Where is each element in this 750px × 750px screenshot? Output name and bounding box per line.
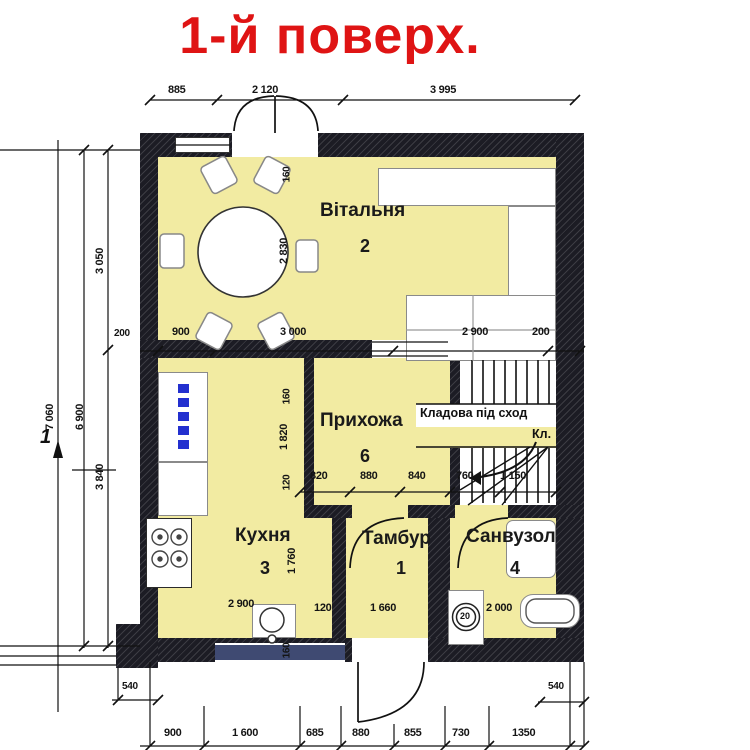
dim-bottom-6: 730 (452, 727, 469, 739)
dim-hall-4: 760 (456, 470, 473, 482)
dim-col-2830: 2 830 (278, 223, 290, 279)
boiler-icon (178, 384, 189, 450)
wall-rooms-top-a (304, 505, 352, 518)
drain-label: 20 (460, 611, 470, 621)
dim-mid-1: 900 (172, 326, 189, 338)
dim-bottom-2: 1 600 (232, 727, 258, 739)
dim-hall-1: 820 (310, 470, 327, 482)
dim-col-160c: 160 (282, 623, 293, 679)
hallway-label: Прихожа (320, 410, 403, 432)
dim-col-160a: 160 (282, 147, 293, 203)
wall-right (556, 133, 584, 662)
vestibule-label: Тамбур (362, 528, 431, 550)
closet-label: Кладова під сход (420, 406, 527, 420)
wall-vestibule-left (332, 518, 346, 638)
dim-bottom-7: 1350 (512, 727, 535, 739)
wall-mid-left (140, 340, 372, 358)
floor-plan: 1-й поверх. (0, 0, 750, 750)
dim-bathroom-width: 2 000 (486, 602, 512, 614)
dim-left-upper: 3 050 (94, 233, 106, 289)
dim-top-3: 3 995 (430, 84, 456, 96)
axis-label: 1 (40, 426, 51, 449)
wall-rooms-top-b (408, 505, 455, 518)
dim-left-lower: 3 840 (94, 449, 106, 505)
living-room-number: 2 (360, 236, 370, 257)
dim-offset-left: 540 (122, 681, 138, 692)
dim-kitchen-width: 2 900 (228, 598, 254, 610)
dim-mid-2: 3 000 (280, 326, 306, 338)
dim-hall-2: 880 (360, 470, 377, 482)
bottom-window (215, 643, 345, 662)
dim-hall-5: 1 150 (500, 470, 526, 482)
dim-mid-0: 200 (114, 328, 130, 339)
top-door-opening (232, 133, 318, 157)
dim-left-inner: 6 900 (74, 389, 86, 445)
kitchen-label: Кухня (235, 525, 291, 547)
dim-bottom-3: 685 (306, 727, 323, 739)
living-room-label: Вітальня (320, 200, 405, 222)
stove-icon (146, 518, 192, 588)
hallway-number: 6 (360, 446, 370, 467)
bathtub-icon (520, 594, 580, 628)
dim-bottom-5: 855 (404, 727, 421, 739)
dim-bottom-4: 880 (352, 727, 369, 739)
dim-offset-right: 540 (548, 681, 564, 692)
dim-col-1760: 1 760 (286, 533, 298, 589)
dim-wall-thickness: 120 (314, 602, 331, 614)
dim-vestibule-width: 1 660 (370, 602, 396, 614)
dim-col-120: 120 (282, 455, 293, 511)
bathroom-label: Санвузол (466, 526, 556, 548)
kitchen-number: 3 (260, 558, 270, 579)
pier-bottom-left (116, 624, 158, 668)
bathroom-number: 4 (510, 558, 520, 579)
wall-rooms-top-c (508, 505, 584, 518)
dim-bottom-1: 900 (164, 727, 181, 739)
top-window (175, 137, 230, 153)
wall-kitchen-hall (304, 358, 314, 518)
dim-hall-3: 840 (408, 470, 425, 482)
entrance-opening (352, 638, 428, 662)
kitchen-counter2-icon (158, 462, 208, 516)
dim-top-2: 2 120 (252, 84, 278, 96)
dim-mid-4: 200 (532, 326, 549, 338)
dim-mid-3: 2 900 (462, 326, 488, 338)
closet-label-2: Кл. (532, 427, 551, 441)
wall-vestibule-right (428, 518, 450, 638)
wall-stairs-left (450, 358, 460, 505)
vestibule-number: 1 (396, 558, 406, 579)
page-title: 1-й поверх. (100, 6, 560, 66)
dim-top-1: 885 (168, 84, 185, 96)
